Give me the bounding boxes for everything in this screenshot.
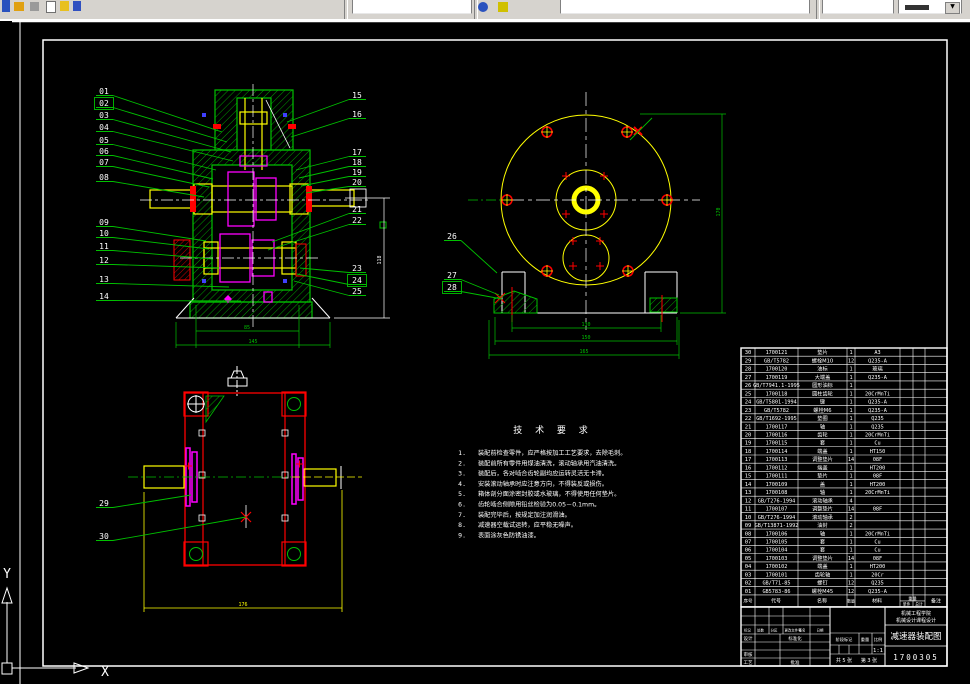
svg-text:18: 18	[745, 449, 752, 455]
callout-number: 14	[99, 292, 109, 301]
callout-number: 18	[352, 158, 362, 167]
callout-07: 07	[96, 158, 209, 187]
help-icon[interactable]	[478, 2, 488, 12]
svg-text:1: 1	[849, 441, 852, 447]
svg-text:130: 130	[581, 322, 590, 328]
callout-number: 17	[352, 148, 362, 157]
toolbar-field-3[interactable]	[822, 0, 894, 14]
callout-number: 15	[352, 91, 362, 100]
toolbar-separator	[344, 0, 348, 19]
svg-text:02: 02	[745, 581, 752, 587]
callout-number: 13	[99, 275, 109, 284]
svg-text:GB5783-86: GB5783-86	[762, 589, 790, 595]
callout-number: 08	[99, 173, 109, 182]
pen-icon[interactable]	[73, 1, 81, 11]
svg-text:14: 14	[848, 457, 854, 463]
svg-text:14: 14	[848, 507, 854, 513]
tech-item-text: 安装滚动轴承时应注意方向，不得装反或损伤。	[478, 480, 608, 488]
svg-text:1700111: 1700111	[766, 474, 788, 480]
svg-text:玻璃: 玻璃	[872, 365, 882, 373]
svg-text:套: 套	[820, 537, 826, 545]
bom-row: 201700116齿轮120CrMnTi	[745, 431, 890, 439]
svg-text:圆形油标: 圆形油标	[812, 381, 833, 389]
svg-text:盖: 盖	[820, 480, 825, 488]
svg-text:套: 套	[820, 439, 826, 447]
callout-number: 09	[99, 218, 109, 227]
drawing-canvas[interactable]: Y X	[0, 21, 970, 684]
tech-requirements: 技 术 要 求 1.装配前检查零件，应严格按加工工艺要求，去除毛刺。2.装配前所…	[458, 424, 626, 539]
tech-item-text: 装配前检查零件，应严格按加工工艺要求，去除毛刺。	[478, 449, 627, 457]
callout-number: 28	[447, 283, 457, 292]
callout-number: 30	[99, 532, 109, 541]
svg-text:1: 1	[849, 433, 852, 439]
svg-text:2: 2	[849, 523, 852, 529]
svg-text:1: 1	[849, 531, 852, 537]
tech-item-number: 9.	[458, 531, 466, 539]
svg-text:GB/T5782: GB/T5782	[764, 408, 789, 414]
bom-row: 09GB/T13871-1992油封2	[745, 521, 853, 529]
svg-text:01: 01	[745, 589, 752, 595]
callout-number: 19	[352, 168, 362, 177]
svg-text:12: 12	[848, 358, 854, 364]
svg-text:Q235: Q235	[871, 424, 884, 430]
bom-table: 301700121垫片1A329GB/T5782螺栓M1012Q235-A281…	[741, 348, 947, 607]
svg-text:1700114: 1700114	[766, 449, 788, 455]
svg-text:1: 1	[849, 416, 852, 422]
svg-text:1: 1	[849, 391, 852, 397]
svg-text:14: 14	[745, 482, 752, 488]
bom-row: 191700115套1Cu	[745, 439, 881, 447]
svg-text:06: 06	[745, 548, 752, 554]
app-toolbar: ▼	[0, 0, 970, 21]
svg-text:22: 22	[745, 416, 752, 422]
bom-header: 序号代号名称数量材料重量单件总计备注	[744, 595, 942, 607]
svg-text:20CrMnTi: 20CrMnTi	[865, 531, 890, 537]
svg-text:螺钉: 螺钉	[817, 579, 827, 587]
tech-item-number: 1.	[458, 449, 466, 457]
tb-scale-value: 1:1	[873, 648, 883, 654]
svg-text:1: 1	[849, 539, 852, 545]
svg-text:调整垫片: 调整垫片	[812, 455, 833, 463]
callout-20: 20	[306, 178, 366, 193]
svg-text:1700106: 1700106	[766, 531, 788, 537]
bom-row: 151700111垫片108F	[745, 472, 883, 480]
open-file-icon[interactable]	[14, 2, 24, 11]
tool-icon[interactable]	[498, 2, 508, 12]
svg-text:16: 16	[745, 465, 752, 471]
svg-text:29: 29	[745, 358, 752, 364]
svg-text:15: 15	[745, 474, 752, 480]
svg-text:1700115: 1700115	[766, 441, 788, 447]
svg-text:08F: 08F	[873, 474, 882, 480]
bom-row: 141700109盖1HT200	[745, 480, 886, 488]
svg-text:大端盖: 大端盖	[815, 373, 831, 381]
layer-combo[interactable]: ▼	[898, 0, 962, 14]
bom-row: 22GB/T1692-1995垫圈1Q235	[745, 414, 884, 422]
bom-row: 24GB/T5801-1994键1Q235-A	[745, 398, 888, 406]
bom-row: 041700102端盖1HT200	[745, 562, 886, 570]
svg-text:08F: 08F	[873, 556, 882, 562]
tb-std-label: 标准化	[788, 635, 802, 642]
svg-text:23: 23	[745, 408, 752, 414]
svg-text:30: 30	[745, 350, 752, 356]
svg-text:1700112: 1700112	[766, 465, 788, 471]
tech-item-text: 齿轮啮合侧隙用铅丝检验为0.05－0.1mm。	[478, 501, 600, 509]
print-icon[interactable]	[46, 1, 56, 13]
callout-number: 01	[99, 87, 109, 96]
svg-text:1700120: 1700120	[766, 367, 788, 373]
callout-number: 26	[447, 232, 457, 241]
toolbar-field-1[interactable]	[352, 0, 472, 14]
bom-row: 071700105套1Cu	[745, 537, 881, 545]
svg-text:1: 1	[849, 465, 852, 471]
svg-text:调整垫片: 调整垫片	[812, 554, 833, 562]
bom-row: 131700108轴120CrMnTi	[745, 488, 890, 496]
svg-text:170: 170	[716, 207, 722, 216]
svg-text:1: 1	[849, 474, 852, 480]
svg-text:端盖: 端盖	[817, 447, 827, 455]
callout-number: 27	[447, 271, 457, 280]
bom-row: 281700120油标1玻璃	[745, 365, 883, 373]
svg-text:油封: 油封	[817, 521, 827, 529]
svg-text:HT150: HT150	[870, 449, 886, 455]
svg-text:20: 20	[745, 433, 752, 439]
svg-text:轴: 轴	[820, 529, 825, 537]
svg-text:2: 2	[849, 515, 852, 521]
svg-text:09: 09	[745, 523, 752, 529]
svg-text:Cu: Cu	[874, 548, 880, 554]
callout-01: 01	[96, 87, 222, 132]
svg-text:HT200: HT200	[870, 482, 886, 488]
svg-text:145: 145	[248, 339, 257, 345]
svg-text:26: 26	[745, 383, 752, 389]
callout-number: 03	[99, 111, 109, 120]
svg-text:14: 14	[848, 556, 854, 562]
toolbar-field-2[interactable]	[560, 0, 810, 14]
svg-text:13: 13	[745, 490, 752, 496]
tech-item-text: 装配后，各对啮合齿轮副均应运转灵活无卡滞。	[478, 470, 608, 478]
svg-text:1700105: 1700105	[766, 539, 788, 545]
svg-text:HT200: HT200	[870, 564, 886, 570]
bom-row: 271700119大端盖1Q235-A	[745, 373, 888, 381]
ucs-icon: Y X	[2, 567, 109, 680]
svg-text:1: 1	[849, 400, 852, 406]
tb-approve-label: 批准	[791, 659, 800, 666]
svg-text:GB/T5801-1994: GB/T5801-1994	[756, 400, 797, 406]
svg-text:GB/T1692-1995: GB/T1692-1995	[756, 416, 797, 422]
svg-text:齿轮: 齿轮	[817, 431, 827, 439]
tech-item-number: 4.	[458, 480, 466, 488]
ucs-y-label: Y	[3, 567, 11, 582]
tb-org-line1: 机械工程学院	[901, 610, 931, 617]
svg-text:材料: 材料	[872, 597, 882, 604]
svg-text:03: 03	[745, 572, 752, 578]
svg-text:118: 118	[377, 255, 383, 264]
tech-item-text: 表面涂灰色防锈油漆。	[478, 531, 540, 539]
tech-title: 技 术 要 求	[513, 424, 593, 436]
svg-text:名称: 名称	[817, 597, 827, 604]
svg-text:1: 1	[849, 367, 852, 373]
svg-text:28: 28	[745, 367, 752, 373]
tb-left-header-label: 日期	[817, 628, 824, 633]
svg-text:齿轮轴: 齿轮轴	[815, 570, 831, 578]
svg-text:油标: 油标	[817, 365, 827, 373]
callout-number: 23	[352, 264, 362, 273]
tb-left-header-label: 分区	[771, 628, 778, 633]
svg-text:85: 85	[244, 325, 250, 331]
svg-text:Cu: Cu	[874, 441, 880, 447]
svg-text:备注: 备注	[931, 597, 941, 604]
tech-item-number: 7.	[458, 511, 466, 519]
tech-item-number: 5.	[458, 490, 466, 498]
tb-drawing-title: 减速器装配图	[890, 631, 941, 642]
tech-item-number: 8.	[458, 521, 466, 529]
callout-26: 26	[444, 232, 497, 273]
svg-text:1700116: 1700116	[766, 433, 788, 439]
svg-text:1700113: 1700113	[766, 457, 788, 463]
bom-row: 081700106轴120CrMnTi	[745, 529, 890, 537]
svg-text:10: 10	[745, 515, 752, 521]
callout-number: 22	[352, 216, 362, 225]
svg-text:20Cr: 20Cr	[871, 572, 884, 578]
svg-text:1700104: 1700104	[766, 548, 788, 554]
callout-number: 06	[99, 147, 109, 156]
svg-text:调整垫片: 调整垫片	[812, 505, 833, 513]
svg-text:21: 21	[745, 424, 752, 430]
bom-row: 29GB/T5782螺栓M1012Q235-A	[745, 356, 888, 364]
tech-item-number: 2.	[458, 459, 466, 467]
bom-row: 23GB/T5782螺栓M61Q235-A	[745, 406, 888, 414]
callout-number: 29	[99, 499, 109, 508]
tb-sheet-no: 第 3 张	[861, 657, 877, 664]
callout-number: 12	[99, 256, 109, 265]
svg-text:Q235: Q235	[871, 416, 884, 422]
tb-drawing-no: 1700305	[893, 653, 939, 662]
svg-text:20CrMnTi: 20CrMnTi	[865, 391, 890, 397]
callout-number: 04	[99, 123, 109, 132]
svg-text:GB/T7941.1-1995: GB/T7941.1-1995	[753, 383, 800, 389]
svg-text:1: 1	[849, 449, 852, 455]
svg-text:1: 1	[849, 383, 852, 389]
svg-text:螺栓M45: 螺栓M45	[812, 587, 833, 595]
tb-check-label: 审核	[744, 651, 753, 658]
callout-number: 10	[99, 229, 109, 238]
callout-number: 24	[352, 276, 362, 285]
title-block: 设计 审核 工艺 标准化 批准 阶段标记 重量 比例 1:1 共 5 张 第 3…	[741, 607, 947, 666]
svg-text:数量: 数量	[847, 598, 855, 603]
svg-text:套: 套	[820, 546, 826, 554]
bom-row: 10GB/T276-1994滚动轴承2	[745, 513, 853, 521]
save-icon[interactable]	[30, 2, 39, 11]
svg-text:GB/T5782: GB/T5782	[764, 358, 789, 364]
svg-text:1: 1	[849, 424, 852, 430]
callout-number: 16	[352, 110, 362, 119]
svg-text:1700108: 1700108	[766, 490, 788, 496]
svg-text:1700102: 1700102	[766, 564, 788, 570]
svg-text:1700103: 1700103	[766, 556, 788, 562]
tech-item-text: 箱体剖分面涂密封胶或水玻璃，不得使用任何垫片。	[478, 490, 620, 498]
bom-row: 251700118圆柱齿轮120CrMnTi	[745, 389, 890, 397]
svg-text:20CrMnTi: 20CrMnTi	[865, 490, 890, 496]
tech-item-number: 6.	[458, 501, 466, 509]
tb-org-line2: 机械设计课程设计	[896, 617, 936, 624]
svg-text:序号: 序号	[744, 597, 753, 604]
svg-text:螺栓M10: 螺栓M10	[812, 356, 833, 364]
svg-text:1: 1	[849, 408, 852, 414]
tech-item-number: 3.	[458, 470, 466, 478]
svg-text:Cu: Cu	[874, 539, 880, 545]
svg-text:12: 12	[848, 589, 854, 595]
tb-design-label: 设计	[744, 635, 753, 642]
svg-text:08: 08	[745, 531, 752, 537]
svg-text:代号: 代号	[771, 597, 781, 604]
tech-item-text: 装配前所有零件用煤油清洗，滚动轴承用汽油清洗。	[478, 459, 620, 467]
svg-text:Q235-A: Q235-A	[868, 589, 888, 595]
svg-text:GB/T276-1994: GB/T276-1994	[758, 498, 795, 504]
new-file-icon[interactable]	[2, 0, 10, 12]
callout-number: 02	[99, 99, 109, 108]
svg-text:1: 1	[849, 490, 852, 496]
tech-item-text: 减速器空载试运转，应平稳无噪声。	[478, 521, 577, 529]
svg-text:1: 1	[849, 548, 852, 554]
bom-row: 26GB/T7941.1-1995圆形油标1	[745, 381, 853, 389]
callout-number: 21	[352, 205, 362, 214]
svg-text:Q235-A: Q235-A	[868, 408, 888, 414]
svg-text:端盖: 端盖	[817, 562, 827, 570]
svg-text:垫圈: 垫圈	[817, 414, 827, 422]
ucs-x-label: X	[101, 665, 109, 680]
svg-text:1: 1	[849, 350, 852, 356]
svg-text:25: 25	[745, 391, 752, 397]
svg-text:A3: A3	[874, 350, 880, 356]
svg-text:07: 07	[745, 539, 752, 545]
svg-text:12: 12	[848, 581, 854, 587]
svg-text:05: 05	[745, 556, 752, 562]
svg-text:1: 1	[849, 482, 852, 488]
callout-03: 03	[96, 111, 231, 152]
svg-text:4: 4	[849, 498, 852, 504]
toolbar-separator	[816, 0, 820, 19]
svg-text:17: 17	[745, 457, 752, 463]
bom-row: 111700107调整垫片1408F	[745, 505, 883, 513]
svg-text:1700107: 1700107	[766, 507, 788, 513]
end-view: 130 150 165 170	[468, 92, 726, 359]
callout-22: 22	[268, 216, 366, 250]
toolbar-separator	[474, 0, 478, 19]
tb-left-header-label: 处数	[757, 628, 764, 633]
tb-scale-label: 比例	[874, 636, 882, 643]
svg-text:04: 04	[745, 564, 752, 570]
svg-text:08F: 08F	[873, 457, 882, 463]
svg-text:螺栓M6: 螺栓M6	[813, 406, 831, 414]
preview-icon[interactable]	[60, 1, 69, 11]
bom-row: 211700117轴1Q235	[745, 422, 884, 430]
callout-number: 11	[99, 242, 109, 251]
svg-text:165: 165	[579, 349, 588, 355]
callout-number: 25	[352, 287, 362, 296]
bom-row: 061700104套1Cu	[745, 546, 881, 554]
svg-text:27: 27	[745, 375, 752, 381]
combo-dropdown-icon: ▼	[945, 2, 960, 14]
svg-text:1700117: 1700117	[766, 424, 788, 430]
bolt-holes	[501, 126, 673, 277]
svg-text:GB/T276-1994: GB/T276-1994	[758, 515, 795, 521]
svg-text:单件: 单件	[903, 602, 911, 607]
svg-text:垫片: 垫片	[817, 472, 827, 480]
svg-text:19: 19	[745, 441, 752, 447]
svg-text:垫片: 垫片	[817, 348, 827, 356]
bom-row: 181700114端盖1HT150	[745, 447, 886, 455]
svg-text:150: 150	[581, 335, 590, 341]
svg-text:Q235-A: Q235-A	[868, 375, 888, 381]
svg-text:端盖: 端盖	[817, 463, 827, 471]
svg-text:圆柱齿轮: 圆柱齿轮	[812, 389, 833, 397]
svg-text:1700121: 1700121	[766, 350, 788, 356]
svg-text:1: 1	[849, 564, 852, 570]
svg-text:12: 12	[745, 498, 752, 504]
bom-row: 01GB5783-86螺栓M4512Q235-A	[745, 587, 888, 595]
tb-process-label: 工艺	[744, 660, 753, 666]
bom-row: 171700113调整垫片1408F	[745, 455, 883, 463]
callout-number: 05	[99, 136, 109, 145]
svg-text:1700101: 1700101	[766, 572, 788, 578]
callout-29: 29	[96, 495, 191, 508]
tb-stage-label: 阶段标记	[836, 636, 854, 643]
svg-text:轴: 轴	[820, 422, 825, 430]
callout-16: 16	[291, 110, 366, 137]
bom-row: 12GB/T276-1994滚动轴承4	[745, 496, 853, 504]
svg-text:20CrMnTi: 20CrMnTi	[865, 433, 890, 439]
bom-row: 02GB/T71-85螺钉12Q235	[745, 579, 884, 587]
svg-text:Q235-A: Q235-A	[868, 400, 888, 406]
top-view: 176	[128, 366, 362, 612]
tb-sheets-total: 共 5 张	[836, 657, 852, 664]
callout-30: 30	[96, 517, 246, 541]
svg-text:滚动轴承: 滚动轴承	[812, 496, 834, 504]
bom-row: 051700103调整垫片1408F	[745, 554, 883, 562]
svg-text:键: 键	[820, 398, 825, 406]
bom-row: 031700101齿轮轴120Cr	[745, 570, 884, 578]
tech-item-text: 装配完毕后，按规定加注润滑油。	[478, 511, 571, 519]
tb-weight-label: 重量	[861, 636, 869, 643]
tb-left-header-label: 签名	[799, 628, 806, 633]
tb-left-header-label: 标记	[744, 628, 751, 633]
svg-text:11: 11	[745, 507, 752, 513]
svg-text:08F: 08F	[873, 507, 882, 513]
svg-text:滚动轴承: 滚动轴承	[812, 513, 834, 521]
svg-text:GB/T71-85: GB/T71-85	[762, 581, 790, 587]
svg-text:HT200: HT200	[870, 465, 886, 471]
svg-text:1: 1	[849, 572, 852, 578]
svg-text:1700118: 1700118	[766, 391, 788, 397]
svg-text:1: 1	[849, 375, 852, 381]
svg-text:Q235-A: Q235-A	[868, 358, 888, 364]
svg-text:1700109: 1700109	[766, 482, 788, 488]
bom-row: 301700121垫片1A3	[745, 348, 881, 356]
svg-text:24: 24	[745, 400, 752, 406]
callout-number: 20	[352, 178, 362, 187]
svg-text:176: 176	[238, 602, 247, 608]
bom-row: 161700112端盖1HT200	[745, 463, 886, 471]
svg-text:轴: 轴	[820, 488, 825, 496]
svg-text:总计: 总计	[915, 602, 923, 607]
svg-text:GB/T13871-1992: GB/T13871-1992	[755, 523, 799, 529]
svg-text:1700119: 1700119	[766, 375, 788, 381]
svg-text:Q235: Q235	[871, 581, 884, 587]
callout-number: 07	[99, 158, 109, 167]
